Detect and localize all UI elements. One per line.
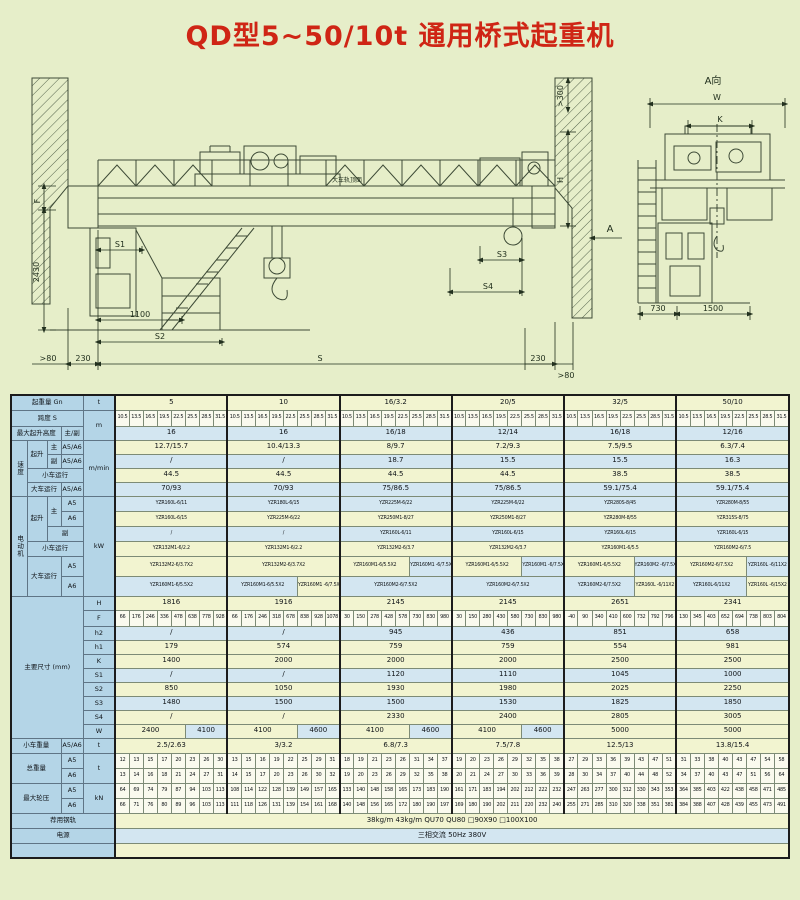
data-cell: 79	[157, 783, 171, 798]
data-cell: 28.5	[536, 410, 550, 426]
data-cell: 37	[690, 768, 704, 783]
hook-block	[264, 226, 290, 300]
data-cell: 212	[522, 783, 536, 798]
data-cell: 28.5	[648, 410, 662, 426]
data-cell: 38kg/m 43kg/m QU70 QU80 □90X90 □100X100	[115, 813, 789, 828]
data-cell: YZR160M1-6/5.5X2	[227, 576, 297, 596]
data-cell: 36	[536, 768, 550, 783]
table-row: 总重量A5t1213151720232630131516192225293118…	[11, 753, 789, 768]
row-label-cell	[11, 843, 115, 858]
data-cell: 320	[620, 798, 634, 813]
data-cell: 38	[550, 753, 564, 768]
data-cell: 15	[241, 768, 255, 783]
data-cell: 580	[508, 610, 522, 626]
data-cell: 1980	[452, 682, 564, 696]
data-cell: 131	[269, 798, 283, 813]
data-cell: 19.5	[269, 410, 283, 426]
data-cell: 161	[312, 798, 326, 813]
data-cell: 1078	[326, 610, 340, 626]
data-cell: 16.3	[676, 454, 789, 468]
data-cell: 430	[494, 610, 508, 626]
data-cell: 1816	[115, 596, 227, 610]
data-cell: 30	[508, 768, 522, 783]
data-cell: 44.5	[227, 468, 339, 482]
dim-label-gt300: >300	[556, 85, 565, 107]
data-cell: 179	[115, 640, 227, 654]
data-cell: 19	[452, 753, 466, 768]
row-label-cell: 荐用钢轨	[11, 813, 115, 828]
data-cell: 16.5	[480, 410, 494, 426]
data-cell: 59.1/75.4	[564, 482, 676, 496]
data-cell: 10.5	[340, 410, 354, 426]
data-cell: 32	[326, 768, 340, 783]
data-cell: 22.5	[171, 410, 185, 426]
data-cell: 180	[410, 798, 424, 813]
data-cell: 22	[283, 753, 297, 768]
data-cell: /	[227, 668, 339, 682]
row-label-cell: F	[83, 610, 115, 626]
data-cell: 150	[466, 610, 480, 626]
data-cell: 318	[269, 610, 283, 626]
data-cell: 30	[452, 610, 466, 626]
data-cell: 69	[129, 783, 143, 798]
data-cell: YZR225M-6/22	[227, 511, 339, 526]
data-cell: 190	[438, 783, 452, 798]
data-cell: 18	[157, 768, 171, 783]
data-cell	[115, 843, 789, 858]
data-cell: YZR250M1-8/27	[452, 511, 564, 526]
data-cell: YZR160L-6/11	[340, 526, 452, 541]
rail-top-note: 大车轨顶面	[332, 176, 362, 184]
data-cell: 403	[704, 610, 718, 626]
data-cell: 2145	[340, 596, 452, 610]
dim-label-2430: 2430	[32, 262, 41, 282]
data-cell: 263	[578, 783, 592, 798]
data-cell: 211	[508, 798, 522, 813]
bridge-girder	[98, 186, 555, 226]
row-label-cell: h1	[83, 640, 115, 654]
data-cell: YZR132M2-6/3.7X2	[115, 556, 227, 576]
data-cell: YZR160L-6/15	[452, 526, 564, 541]
data-cell: 19	[269, 753, 283, 768]
dim-label-s2: S2	[155, 332, 165, 341]
data-cell: 23	[185, 753, 199, 768]
data-cell: 6.3/7.4	[676, 440, 789, 454]
side-ladder	[638, 160, 656, 303]
data-cell: 172	[396, 798, 410, 813]
data-cell: 240	[550, 798, 564, 813]
data-cell: 222	[536, 783, 550, 798]
data-cell: 20	[269, 768, 283, 783]
data-cell: 30	[213, 753, 227, 768]
data-cell: 4100	[185, 724, 227, 738]
data-cell: 652	[718, 610, 732, 626]
data-cell: 310	[606, 798, 620, 813]
data-cell: 165	[326, 783, 340, 798]
data-cell: 428	[382, 610, 396, 626]
data-cell: 32	[410, 768, 424, 783]
data-cell: 10.5	[564, 410, 578, 426]
data-cell: 18.7	[340, 454, 452, 468]
row-label-cell: 副	[47, 454, 61, 468]
data-cell: 730	[522, 610, 536, 626]
data-cell: 31.5	[326, 410, 340, 426]
table-row: S1//1120111010451000	[11, 668, 789, 682]
data-cell: 38.5	[564, 468, 676, 482]
data-cell: 47	[746, 753, 760, 768]
data-cell: 850	[115, 682, 227, 696]
dim-label-w: W	[713, 93, 721, 102]
data-cell: 176	[241, 610, 255, 626]
dim-label-k: K	[717, 115, 723, 124]
data-cell: YZR160M2-6/7.5X2	[452, 576, 564, 596]
data-cell: 436	[452, 626, 564, 640]
data-cell: YZR160L -6/11X2	[746, 556, 789, 576]
data-cell: 796	[662, 610, 676, 626]
data-cell: 31.5	[438, 410, 452, 426]
data-cell: 20	[466, 753, 480, 768]
table-row: A613141618212427311415172023263032192023…	[11, 768, 789, 783]
data-cell: 148	[368, 783, 382, 798]
data-cell: 13	[115, 768, 129, 783]
data-cell: YZR160M1 -6/7.5X2	[410, 556, 452, 576]
data-cell: 4600	[410, 724, 452, 738]
row-label-cell: 起升	[27, 496, 47, 541]
row-label-cell: t	[83, 738, 115, 753]
row-label-cell: K	[83, 654, 115, 668]
data-cell: 31	[326, 753, 340, 768]
data-cell: 422	[718, 783, 732, 798]
data-cell: 66	[115, 798, 129, 813]
data-cell: 18	[340, 753, 354, 768]
data-cell: 4100	[227, 724, 297, 738]
data-cell: 16/18	[564, 426, 676, 440]
table-row: 荐用钢轨38kg/m 43kg/m QU70 QU80 □90X90 □100X…	[11, 813, 789, 828]
view-a-title: A向	[705, 74, 722, 87]
row-label-cell: 电动机	[11, 496, 27, 596]
side-hook	[714, 236, 723, 251]
data-cell: 16.5	[255, 410, 269, 426]
data-cell: 180	[466, 798, 480, 813]
data-cell: 118	[241, 798, 255, 813]
data-cell: 70/93	[227, 482, 339, 496]
data-cell: 28.5	[199, 410, 213, 426]
data-cell: 1930	[340, 682, 452, 696]
dim-label-f: F	[33, 198, 42, 203]
view-a-arrow-label: A	[607, 224, 614, 235]
data-cell: 830	[424, 610, 438, 626]
data-cell: 28	[564, 768, 578, 783]
data-cell: 148	[354, 798, 368, 813]
data-cell: YZR132M2-6/3.7X2	[227, 556, 339, 576]
table-row: h1179574759759554981	[11, 640, 789, 654]
data-cell: 36	[606, 753, 620, 768]
data-cell: 945	[340, 626, 452, 640]
data-cell: 1825	[564, 696, 676, 710]
catalog-page: { "page": { "title": "QD型5~50/10t 通用桥式起重…	[0, 0, 800, 900]
data-cell: 658	[676, 626, 789, 640]
data-cell: 1400	[115, 654, 227, 668]
row-label-cell: A6	[61, 768, 83, 783]
data-cell: 403	[704, 783, 718, 798]
row-label-cell: 总重量	[11, 753, 61, 783]
data-cell: 20/5	[452, 395, 564, 410]
data-cell: 64	[774, 768, 789, 783]
data-cell: 2500	[676, 654, 789, 668]
data-cell: 638	[185, 610, 199, 626]
data-cell: 19.5	[157, 410, 171, 426]
data-cell: 140	[354, 783, 368, 798]
data-cell: 16/3.2	[340, 395, 452, 410]
data-cell: 2145	[452, 596, 564, 610]
data-cell: 13.5	[466, 410, 480, 426]
data-cell: 455	[746, 798, 760, 813]
data-cell: 15.5	[452, 454, 564, 468]
data-cell: 247	[564, 783, 578, 798]
data-cell: 1500	[340, 696, 452, 710]
data-cell: 194	[494, 783, 508, 798]
data-cell: 285	[592, 798, 606, 813]
data-cell: 804	[774, 610, 789, 626]
data-cell: 29	[312, 753, 326, 768]
row-label-cell: 主/副	[61, 426, 83, 440]
data-cell: 19.5	[606, 410, 620, 426]
spec-table-wrap: 起重量 Gnt51016/3.220/532/550/10跨度 Sm10.513…	[10, 394, 790, 859]
dim-label-1100: 1100	[130, 310, 150, 319]
data-cell: 2400	[452, 710, 564, 724]
dim-label-s4: S4	[483, 282, 493, 291]
data-cell: 232	[550, 783, 564, 798]
data-cell: 1850	[676, 696, 789, 710]
row-label-cell: m/min	[83, 440, 115, 496]
table-row: 小车运行44.544.544.544.538.538.5	[11, 468, 789, 482]
data-cell: YZR160M2-6/7.5X2	[676, 556, 746, 576]
data-cell: YZR315S-8/75	[676, 511, 789, 526]
data-cell: 20	[354, 768, 368, 783]
data-cell: 126	[255, 798, 269, 813]
data-cell: 50/10	[676, 395, 789, 410]
data-cell: 330	[634, 783, 648, 798]
row-label-cell: 起升	[27, 440, 47, 468]
data-cell: 27	[494, 768, 508, 783]
right-wall-hatch	[555, 78, 592, 318]
data-cell: 16	[227, 426, 339, 440]
data-cell: 113	[213, 783, 227, 798]
row-label-cell: 电源	[11, 828, 115, 843]
dim-label-230-right: 230	[530, 354, 545, 363]
data-cell: 44.5	[340, 468, 452, 482]
data-cell: 139	[283, 783, 297, 798]
data-cell: 43	[634, 753, 648, 768]
data-cell: 16.5	[704, 410, 718, 426]
data-cell: 16	[255, 753, 269, 768]
data-cell: 26	[199, 753, 213, 768]
girder-section-left	[662, 188, 707, 220]
crane-drawing-svg: F 2430 S1 1100 S2 >80 230 S 230 >80 >300…	[10, 68, 790, 390]
data-cell: 44.5	[115, 468, 227, 482]
data-cell: 271	[578, 798, 592, 813]
data-cell: 732	[634, 610, 648, 626]
row-label-cell: 大车运行	[27, 482, 61, 496]
data-cell: 70/93	[115, 482, 227, 496]
data-cell: 578	[396, 610, 410, 626]
row-label-cell: A5	[61, 556, 83, 576]
table-row: S285010501930198020252250	[11, 682, 789, 696]
data-cell: 31	[410, 753, 424, 768]
row-label-cell: S2	[83, 682, 115, 696]
row-label-cell: h2	[83, 626, 115, 640]
data-cell: 74	[143, 783, 157, 798]
data-cell: 197	[438, 798, 452, 813]
data-cell: 34	[592, 768, 606, 783]
data-cell: 2000	[452, 654, 564, 668]
data-cell: YZR160L-6/15	[676, 526, 789, 541]
data-cell: 30	[578, 768, 592, 783]
data-cell: 759	[452, 640, 564, 654]
data-cell: 31.5	[550, 410, 564, 426]
data-cell: 277	[592, 783, 606, 798]
data-cell: 312	[620, 783, 634, 798]
data-cell: 29	[508, 753, 522, 768]
data-cell: YZR132M2-6/3.7	[340, 541, 452, 556]
data-cell: 27	[564, 753, 578, 768]
data-cell: 202	[508, 783, 522, 798]
data-cell: 23	[283, 768, 297, 783]
data-cell: 39	[620, 753, 634, 768]
data-cell: /	[227, 710, 339, 724]
data-cell: 58	[774, 753, 789, 768]
data-cell: 2500	[564, 654, 676, 668]
data-cell: 4100	[452, 724, 522, 738]
cab	[658, 223, 712, 303]
data-cell: YZR160M2 -6/7.5X2	[634, 556, 676, 576]
data-cell: 16/18	[340, 426, 452, 440]
row-label-cell: 小车重量	[11, 738, 61, 753]
data-cell: 47	[732, 768, 746, 783]
data-cell: 16.5	[368, 410, 382, 426]
data-cell: 981	[676, 640, 789, 654]
data-cell: 458	[746, 783, 760, 798]
data-cell: 190	[424, 798, 438, 813]
data-cell: 364	[676, 783, 690, 798]
table-row: 副//YZR160L-6/11YZR160L-6/15YZR160L-6/15Y…	[11, 526, 789, 541]
spec-table: 起重量 Gnt51016/3.220/532/550/10跨度 Sm10.513…	[10, 394, 790, 859]
table-row	[11, 843, 789, 858]
data-cell: 44	[634, 768, 648, 783]
data-cell: /	[115, 526, 227, 541]
data-cell: 232	[536, 798, 550, 813]
data-cell: 21	[466, 768, 480, 783]
data-cell: YZR160L-6/15	[115, 511, 227, 526]
data-cell: YZR280M-8/55	[564, 511, 676, 526]
data-cell: 803	[760, 610, 774, 626]
data-cell: 37	[606, 768, 620, 783]
data-cell: 345	[690, 610, 704, 626]
crane-drawing: F 2430 S1 1100 S2 >80 230 S 230 >80 >300…	[10, 68, 790, 390]
left-runway-girder	[68, 186, 98, 228]
data-cell: 26	[297, 768, 311, 783]
data-cell: 19	[340, 768, 354, 783]
data-cell: 1500	[227, 696, 339, 710]
data-cell: 21	[171, 768, 185, 783]
table-row: 大车运行A5YZR132M2-6/3.7X2YZR132M2-6/3.7X2YZ…	[11, 556, 789, 576]
data-cell: 300	[606, 783, 620, 798]
data-cell: 384	[676, 798, 690, 813]
data-cell: 47	[648, 753, 662, 768]
data-cell: 157	[312, 783, 326, 798]
data-cell: 128	[269, 783, 283, 798]
data-cell: 202	[494, 798, 508, 813]
data-cell: 28.5	[760, 410, 774, 426]
data-cell: YZR160L -6/11X2	[634, 576, 676, 596]
data-cell: 7.5/7.8	[452, 738, 564, 753]
data-cell: 171	[466, 783, 480, 798]
row-label-cell: S4	[83, 710, 115, 724]
row-label-cell: 主要尺寸 (mm)	[11, 596, 83, 738]
data-cell: 246	[143, 610, 157, 626]
data-cell: 491	[774, 798, 789, 813]
data-cell: 168	[326, 798, 340, 813]
row-label-cell: S3	[83, 696, 115, 710]
data-cell: 33	[592, 753, 606, 768]
data-cell: YZR160L-6/11	[115, 496, 227, 511]
data-cell: 156	[368, 798, 382, 813]
data-cell: 1050	[227, 682, 339, 696]
data-cell: 16.5	[143, 410, 157, 426]
data-cell: 928	[312, 610, 326, 626]
table-row: 大车运行A5/A670/9370/9375/86.575/86.559.1/75…	[11, 482, 789, 496]
girder-section-right	[727, 188, 772, 220]
data-cell: 108	[227, 783, 241, 798]
data-cell: 150	[354, 610, 368, 626]
data-cell: 12.5/13	[564, 738, 676, 753]
data-cell: 13.5	[241, 410, 255, 426]
data-cell: 1110	[452, 668, 564, 682]
data-cell: 388	[690, 798, 704, 813]
table-row: 最大轮压A5kN64697479879410311310811412212813…	[11, 783, 789, 798]
data-cell: YZR160M2-6/7.5X2	[564, 576, 634, 596]
data-cell: 183	[424, 783, 438, 798]
data-cell: 20	[452, 768, 466, 783]
data-cell: 30	[340, 610, 354, 626]
data-cell: 48	[648, 768, 662, 783]
data-cell: 22.5	[396, 410, 410, 426]
data-cell: YZR160M1 -6/7.5X2	[522, 556, 564, 576]
data-cell: 2400	[115, 724, 185, 738]
data-cell: 25	[297, 753, 311, 768]
row-label-cell: 主	[47, 440, 61, 454]
data-cell: 24	[480, 768, 494, 783]
data-cell: 485	[774, 783, 789, 798]
data-cell: 1045	[564, 668, 676, 682]
data-cell: 13	[129, 753, 143, 768]
dim-label-gt80-right: >80	[558, 371, 575, 380]
data-cell: 165	[396, 783, 410, 798]
data-cell: 三相交流 50Hz 380V	[115, 828, 789, 843]
data-cell: 385	[690, 783, 704, 798]
data-cell: 16.5	[592, 410, 606, 426]
row-label-cell: A6	[61, 798, 83, 813]
data-cell: 13.5	[354, 410, 368, 426]
data-cell: 25.5	[746, 410, 760, 426]
data-cell: 40	[620, 768, 634, 783]
data-cell: 2341	[676, 596, 789, 610]
data-cell: 59.1/75.4	[676, 482, 789, 496]
data-cell: 87	[171, 783, 185, 798]
data-cell: 23	[480, 753, 494, 768]
data-cell: 44.5	[452, 468, 564, 482]
data-cell: 2250	[676, 682, 789, 696]
